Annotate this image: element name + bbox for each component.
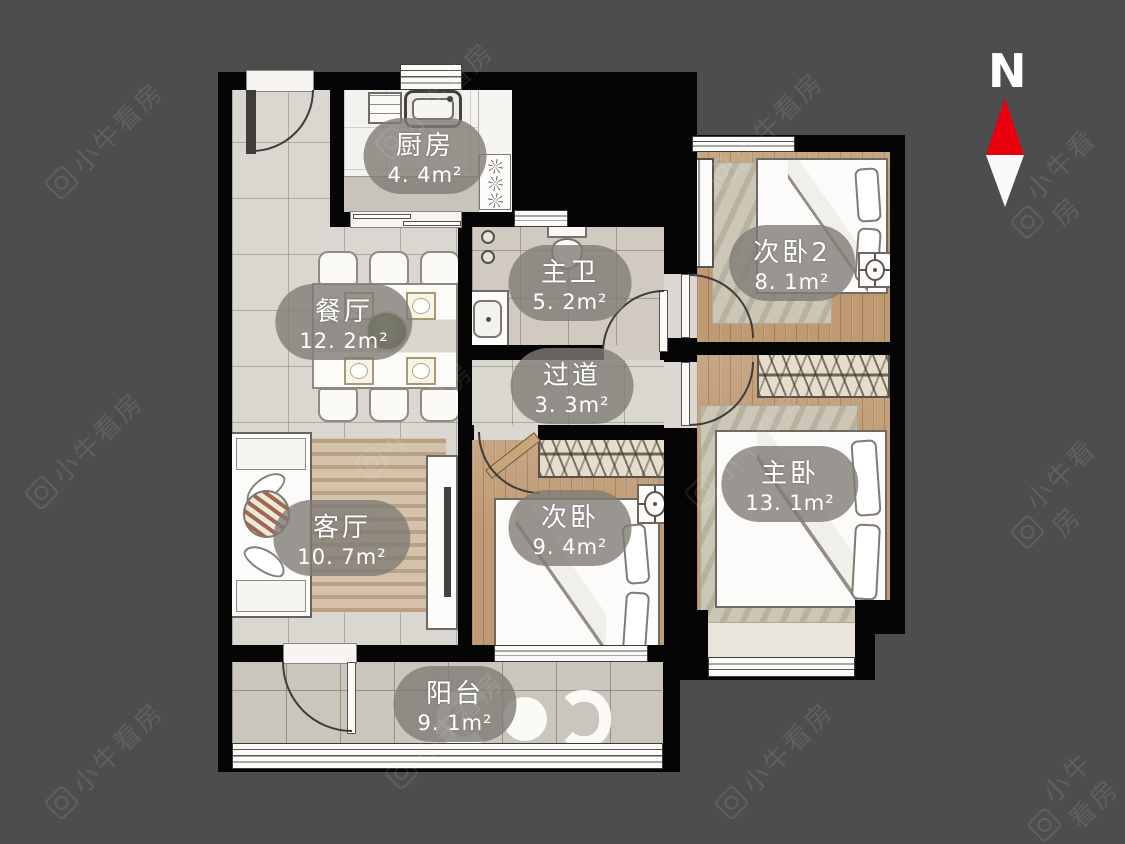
shower-fixture xyxy=(481,250,495,264)
room-name: 阳台 xyxy=(418,673,493,710)
tv-cabinet xyxy=(426,455,458,630)
compass: N xyxy=(986,44,1026,214)
dining-chair xyxy=(369,388,409,422)
shower-fixture xyxy=(481,230,495,244)
pillow xyxy=(851,523,881,600)
bathroom-window xyxy=(514,210,568,227)
wall xyxy=(218,72,232,772)
room-name: 次卧2 xyxy=(753,232,831,269)
wall xyxy=(663,645,680,772)
room-area: 5. 2m² xyxy=(533,290,608,314)
dining-chair xyxy=(420,388,460,422)
room-name: 过道 xyxy=(535,355,610,392)
room-area: 4. 4m² xyxy=(388,163,463,187)
compass-north-label: N xyxy=(988,44,1027,98)
floor-plan: 厨房 4. 4m² 次卧2 8. 1m² 主卫 5. 2m² 餐厅 12. 2m… xyxy=(0,0,1125,844)
room-area: 9. 1m² xyxy=(418,711,493,735)
wardrobe xyxy=(757,352,890,398)
tv xyxy=(444,487,451,597)
room-area: 9. 4m² xyxy=(533,535,608,559)
room-name: 主卫 xyxy=(533,252,608,289)
wall xyxy=(330,88,344,227)
bedroom-window xyxy=(494,645,648,662)
dining-chair xyxy=(369,251,409,285)
wall xyxy=(458,227,472,660)
room-name: 客厅 xyxy=(297,507,386,544)
balcony-window xyxy=(232,743,663,769)
room-area: 3. 3m² xyxy=(535,393,610,417)
kitchen-window xyxy=(400,64,462,90)
entry-doorway xyxy=(246,70,314,92)
balcony-doorway xyxy=(283,643,357,664)
compass-needle-south xyxy=(986,155,1024,207)
kitchen-sliding-door xyxy=(350,211,462,228)
room-label-dining: 餐厅 12. 2m² xyxy=(275,284,412,360)
dryer xyxy=(557,690,611,748)
master-door-leaf xyxy=(681,362,690,426)
room-name: 餐厅 xyxy=(299,291,388,328)
nightstand-lamp xyxy=(858,252,892,288)
compass-needle-north xyxy=(986,98,1024,155)
place-setting xyxy=(344,357,374,385)
room-area: 8. 1m² xyxy=(753,270,831,294)
wall xyxy=(697,342,890,355)
pillow xyxy=(622,591,650,653)
room-label-balcony: 阳台 9. 1m² xyxy=(394,666,517,742)
room-name: 次卧 xyxy=(533,497,608,534)
room-label-master-bedroom: 主卧 13. 1m² xyxy=(721,446,858,522)
pillow xyxy=(854,167,882,223)
dining-chair xyxy=(420,251,460,285)
room-label-master-bath: 主卫 5. 2m² xyxy=(509,245,632,321)
wall xyxy=(890,135,905,634)
room-name: 主卧 xyxy=(745,453,834,490)
room-label-kitchen: 厨房 4. 4m² xyxy=(364,118,487,194)
room-label-bedroom2: 次卧2 8. 1m² xyxy=(729,225,855,301)
wall xyxy=(680,610,708,680)
room-label-living: 客厅 10. 7m² xyxy=(273,500,410,576)
wall xyxy=(855,600,905,634)
floor-plan-screenshot: 厨房 4. 4m² 次卧2 8. 1m² 主卫 5. 2m² 餐厅 12. 2m… xyxy=(0,0,1125,844)
bay-window xyxy=(708,657,855,677)
dining-chair xyxy=(318,388,358,422)
room-label-bedroom: 次卧 9. 4m² xyxy=(509,490,632,566)
room-area: 13. 1m² xyxy=(745,491,834,515)
place-setting xyxy=(406,357,436,385)
wall xyxy=(664,135,697,274)
wall xyxy=(664,338,697,362)
room-label-hallway: 过道 3. 3m² xyxy=(511,348,634,424)
bedroom2-window xyxy=(692,136,795,152)
bathroom-vanity xyxy=(466,290,509,348)
dining-chair xyxy=(318,251,358,285)
room-name: 厨房 xyxy=(388,125,463,162)
bedroom2-door-leaf xyxy=(681,274,690,338)
room-area: 12. 2m² xyxy=(299,329,388,353)
room-area: 10. 7m² xyxy=(297,545,386,569)
